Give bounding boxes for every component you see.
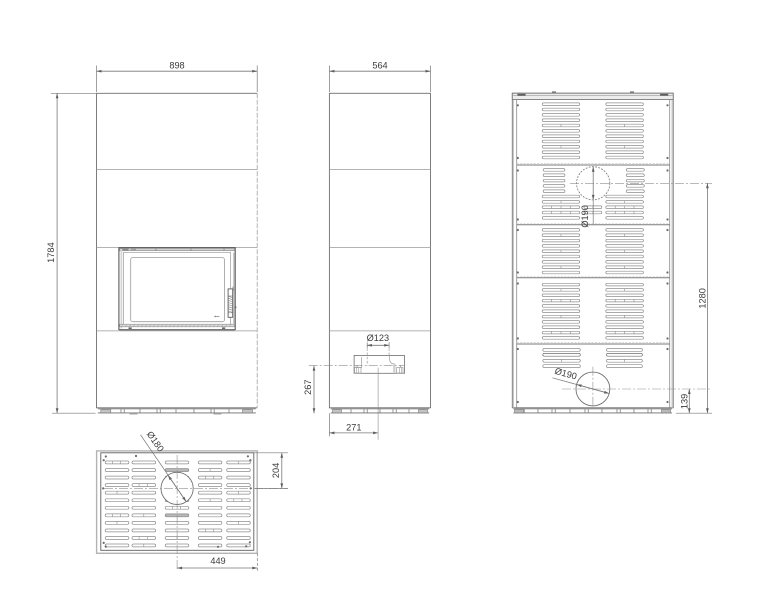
svg-text:Ø123: Ø123	[367, 333, 389, 343]
svg-text:449: 449	[210, 556, 225, 566]
svg-text:139: 139	[679, 394, 689, 409]
svg-text:204: 204	[271, 463, 281, 478]
svg-text:1280: 1280	[698, 288, 708, 308]
svg-text:898: 898	[169, 61, 184, 71]
svg-text:Ø190: Ø190	[580, 205, 590, 227]
svg-text:267: 267	[303, 380, 313, 395]
svg-text:1784: 1784	[46, 242, 56, 262]
svg-text:271: 271	[346, 423, 361, 433]
svg-text:564: 564	[372, 61, 387, 71]
